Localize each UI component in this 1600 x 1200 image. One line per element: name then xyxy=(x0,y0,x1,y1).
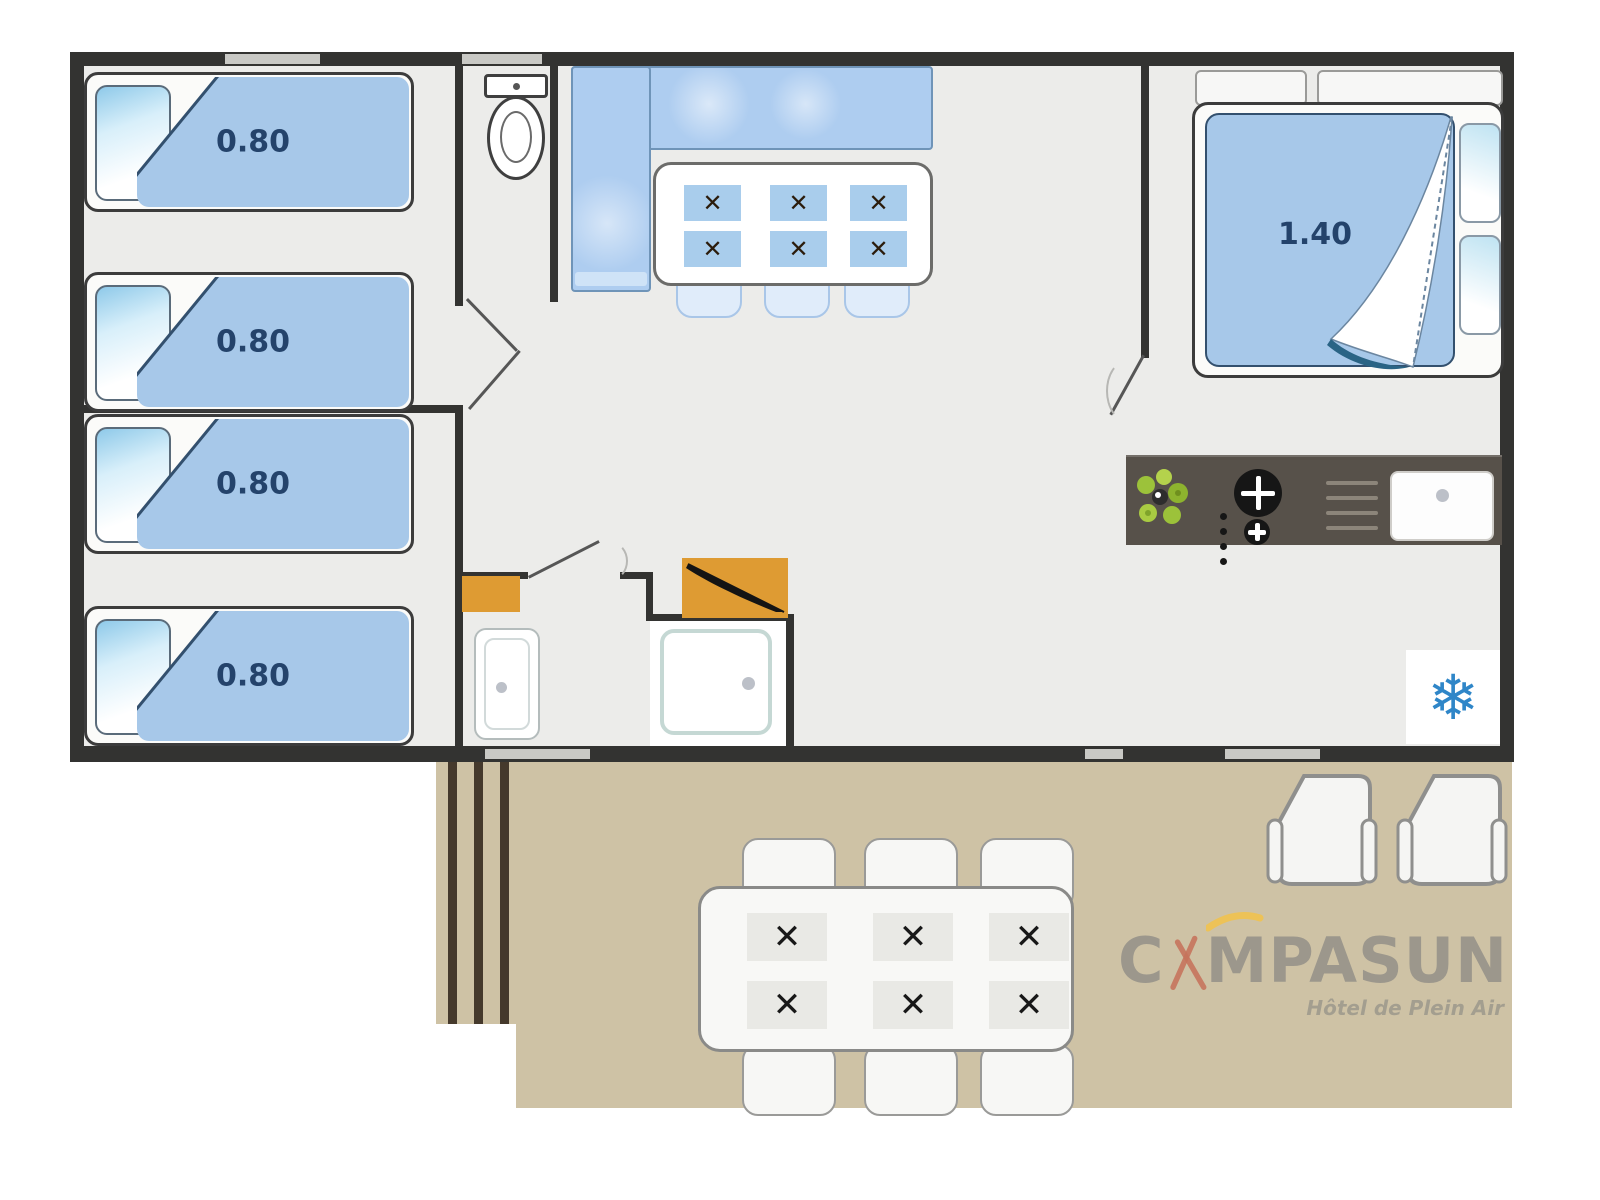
bed-single-3: 0.80 xyxy=(84,414,414,554)
placemat: ✕ xyxy=(850,185,907,221)
terrace-chair xyxy=(742,1044,836,1116)
logo-tagline: Hôtel de Plein Air xyxy=(1118,996,1508,1020)
seat-cross-icon: ✕ xyxy=(868,189,888,217)
shower xyxy=(650,621,786,746)
bed-single-4: 0.80 xyxy=(84,606,414,746)
toilet-tank xyxy=(484,74,548,98)
seat-cross-icon: ✕ xyxy=(1015,917,1044,957)
seat-cross-icon: ✕ xyxy=(773,917,802,957)
cabinet-decor-icon xyxy=(682,558,788,618)
window xyxy=(485,749,590,759)
pillow xyxy=(1459,123,1501,223)
seat-cross-icon: ✕ xyxy=(868,235,888,263)
placemat: ✕ xyxy=(684,185,741,221)
placemat: ✕ xyxy=(873,981,953,1029)
master-bed: 1.40 xyxy=(1192,102,1504,378)
wall xyxy=(455,66,463,306)
lounge-chair xyxy=(1264,770,1380,898)
sink xyxy=(1390,471,1494,541)
patio-door xyxy=(1085,749,1123,759)
seat-cross-icon: ✕ xyxy=(702,189,722,217)
placemat: ✕ xyxy=(873,913,953,961)
placemat: ✕ xyxy=(850,231,907,267)
shower-drain xyxy=(742,677,755,690)
step-line xyxy=(448,762,457,1024)
bed-size-label: 0.80 xyxy=(183,125,323,160)
sink-drain xyxy=(1436,489,1449,502)
bed-size-label: 1.40 xyxy=(1235,217,1395,252)
placemat: ✕ xyxy=(770,185,827,221)
wall xyxy=(550,66,558,302)
basin-drain xyxy=(496,682,507,693)
logo-text-suffix: MPASUN xyxy=(1206,930,1508,992)
pillow xyxy=(1459,235,1501,335)
door-swing-arc xyxy=(596,542,628,580)
bed-size-label: 0.80 xyxy=(183,659,323,694)
placemat: ✕ xyxy=(989,913,1069,961)
ac-snowflake-icon: ❄ xyxy=(1427,661,1479,734)
window xyxy=(462,54,542,64)
placemat: ✕ xyxy=(770,231,827,267)
seat-cross-icon: ✕ xyxy=(788,235,808,263)
campasun-logo: C MPASUN Hôtel de Plein Air xyxy=(1118,930,1508,1020)
bed-size-label: 0.80 xyxy=(183,325,323,360)
seat-cross-icon: ✕ xyxy=(899,985,928,1025)
window xyxy=(225,54,320,64)
step-line xyxy=(474,762,483,1024)
washbasin xyxy=(474,628,540,740)
stove-burner-small xyxy=(1244,519,1270,545)
wardrobe xyxy=(1195,70,1307,106)
step-line xyxy=(500,762,509,1024)
bed-single-1: 0.80 xyxy=(84,72,414,212)
cabinet-orange xyxy=(682,558,788,618)
dining-table: ✕ ✕ ✕ ✕ ✕ ✕ xyxy=(653,162,933,286)
shower-tray xyxy=(660,629,772,735)
drying-rack xyxy=(1326,481,1378,545)
wall xyxy=(1141,66,1149,358)
dining-bench xyxy=(571,66,651,292)
bed-single-2: 0.80 xyxy=(84,272,414,412)
bench-edge xyxy=(575,272,647,286)
seat-cross-icon: ✕ xyxy=(1015,985,1044,1025)
toilet-icon xyxy=(487,96,545,180)
terrace-steps xyxy=(436,762,516,1024)
floorplan-canvas: 0.80 0.80 0.80 0.80 ✕ ✕ ✕ xyxy=(0,0,1600,1200)
logo-wordmark: C MPASUN xyxy=(1118,930,1508,992)
lounge-chair xyxy=(1394,770,1510,898)
logo-text-prefix: C xyxy=(1118,930,1165,992)
logo-tent-icon xyxy=(1164,932,1209,992)
terrace-table: ✕ ✕ ✕ ✕ ✕ ✕ xyxy=(698,886,1074,1052)
stove-burner-large xyxy=(1234,469,1282,517)
wardrobe xyxy=(1317,70,1503,106)
terrace-chair xyxy=(864,1044,958,1116)
seat-cross-icon: ✕ xyxy=(788,189,808,217)
door-swing-arc xyxy=(1106,360,1148,422)
patio-door xyxy=(1225,749,1320,759)
cabinet-orange xyxy=(462,576,520,612)
placemat: ✕ xyxy=(684,231,741,267)
stove-knobs xyxy=(1220,509,1227,569)
wall xyxy=(70,52,84,762)
seat-cross-icon: ✕ xyxy=(899,917,928,957)
bed-size-label: 0.80 xyxy=(183,467,323,502)
placemat: ✕ xyxy=(747,981,827,1029)
seat-cross-icon: ✕ xyxy=(773,985,802,1025)
kitchen-counter xyxy=(1126,455,1502,545)
toilet-button xyxy=(513,83,520,90)
wall xyxy=(786,614,794,750)
seat-cross-icon: ✕ xyxy=(702,235,722,263)
terrace-chair xyxy=(980,1044,1074,1116)
vegetables-icon xyxy=(1132,465,1196,539)
placemat: ✕ xyxy=(989,981,1069,1029)
air-conditioning-badge: ❄ xyxy=(1406,650,1500,744)
placemat: ✕ xyxy=(747,913,827,961)
